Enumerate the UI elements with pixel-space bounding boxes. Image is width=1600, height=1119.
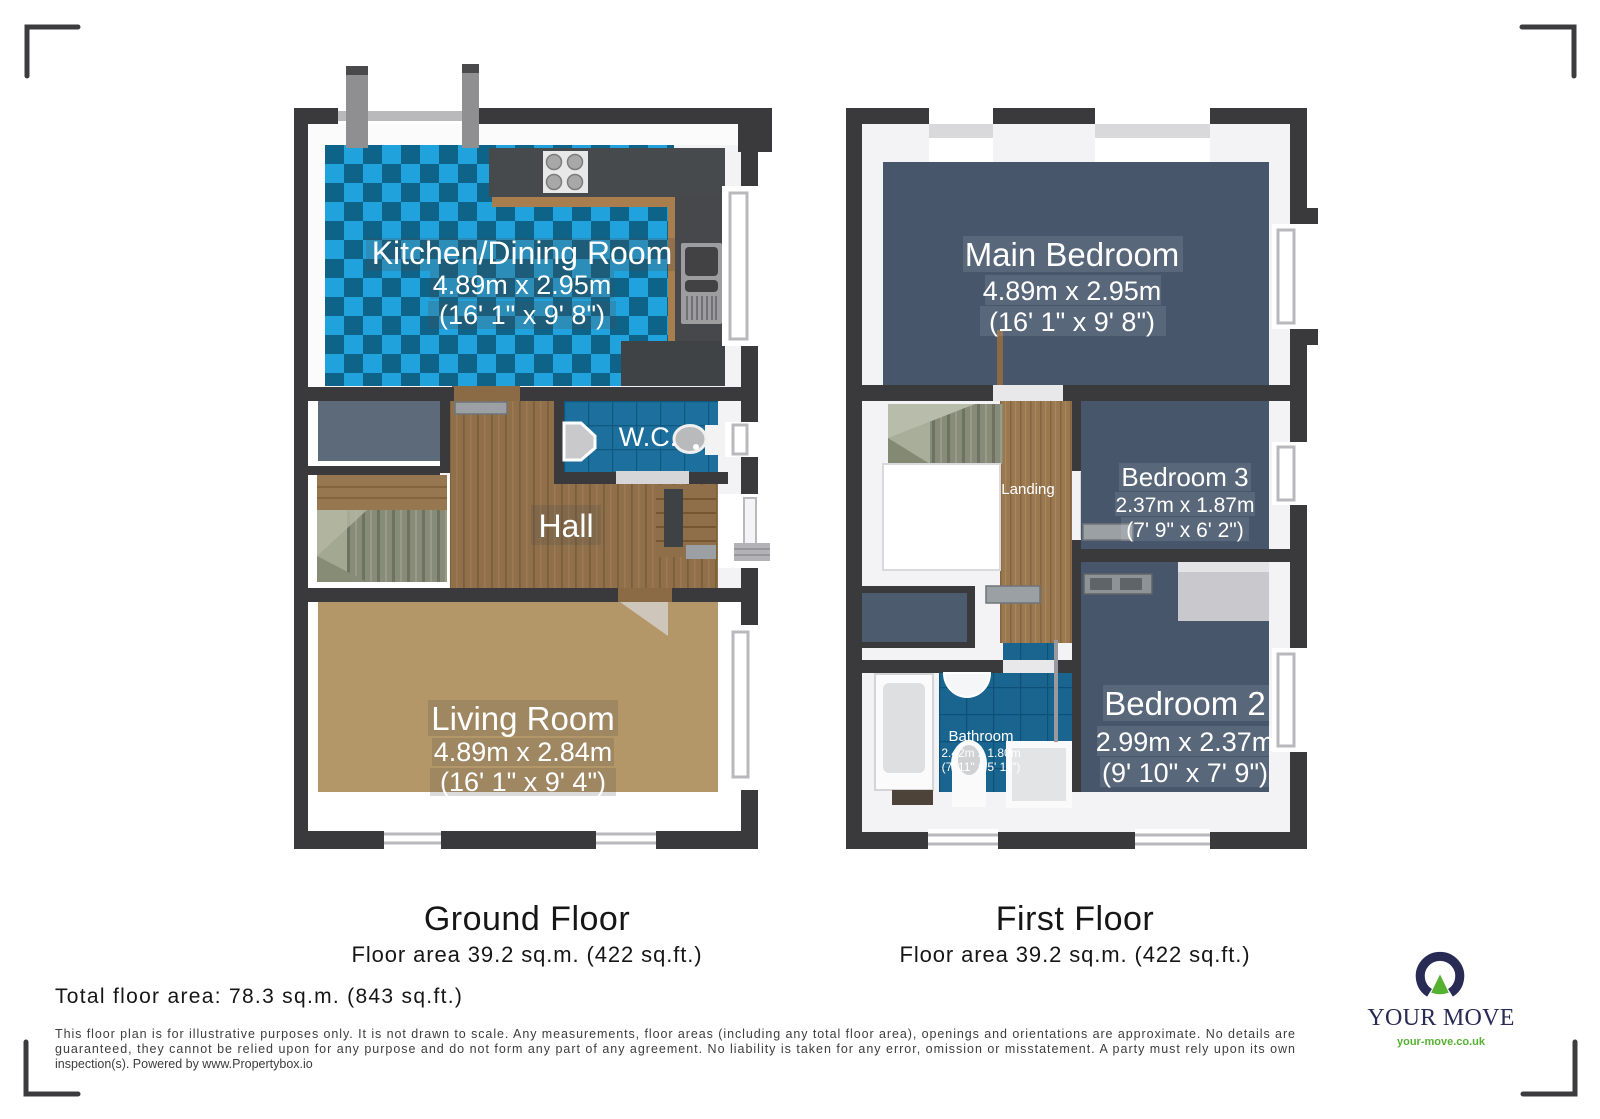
svg-text:Bedroom 2: Bedroom 2 <box>1104 685 1265 722</box>
svg-text:First Floor: First Floor <box>996 900 1155 938</box>
svg-text:(16' 1" x 9' 8"): (16' 1" x 9' 8") <box>439 300 605 330</box>
svg-text:Floor area 39.2 sq.m. (422 sq.: Floor area 39.2 sq.m. (422 sq.ft.) <box>352 942 703 967</box>
svg-text:(16' 1" x 9' 4"): (16' 1" x 9' 4") <box>440 767 606 797</box>
svg-text:guaranteed, they cannot be rel: guaranteed, they cannot be relied upon f… <box>55 1042 1295 1056</box>
svg-text:4.89m x 2.95m: 4.89m x 2.95m <box>433 270 612 300</box>
svg-text:Hall: Hall <box>538 508 593 544</box>
svg-text:4.89m x 2.84m: 4.89m x 2.84m <box>434 737 613 767</box>
svg-text:4.89m x 2.95m: 4.89m x 2.95m <box>983 276 1162 306</box>
svg-text:2.42m x 1.80m: 2.42m x 1.80m <box>941 746 1020 760</box>
svg-text:Ground Floor: Ground Floor <box>424 900 630 938</box>
svg-text:Living Room: Living Room <box>431 700 614 737</box>
svg-text:2.99m x 2.37m: 2.99m x 2.37m <box>1096 727 1275 757</box>
svg-text:Bedroom 3: Bedroom 3 <box>1121 462 1248 492</box>
svg-text:inspection(s). Powered by www.: inspection(s). Powered by www.Propertybo… <box>55 1057 313 1071</box>
svg-text:Floor area 39.2 sq.m. (422 sq.: Floor area 39.2 sq.m. (422 sq.ft.) <box>900 942 1251 967</box>
svg-text:Bathroom: Bathroom <box>948 728 1013 745</box>
svg-text:(7' 11" x 5' 11"): (7' 11" x 5' 11") <box>942 760 1021 774</box>
svg-text:Landing: Landing <box>1001 481 1054 498</box>
svg-text:(9' 10" x 7' 9"): (9' 10" x 7' 9") <box>1102 758 1268 788</box>
svg-text:(7' 9" x 6' 2"): (7' 9" x 6' 2") <box>1126 519 1243 542</box>
svg-text:Kitchen/Dining Room: Kitchen/Dining Room <box>372 235 673 271</box>
svg-text:YOUR MOVE: YOUR MOVE <box>1367 1005 1514 1031</box>
svg-text:your-move.co.uk: your-move.co.uk <box>1397 1036 1486 1048</box>
svg-text:2.37m x 1.87m: 2.37m x 1.87m <box>1116 494 1255 517</box>
svg-text:Total floor area: 78.3 sq.m. (: Total floor area: 78.3 sq.m. (843 sq.ft.… <box>55 985 463 1008</box>
svg-text:W.C.: W.C. <box>619 422 678 452</box>
svg-text:(16' 1" x 9' 8"): (16' 1" x 9' 8") <box>989 307 1155 337</box>
svg-text:This floor plan is for illustr: This floor plan is for illustrative purp… <box>55 1027 1295 1041</box>
svg-text:Main Bedroom: Main Bedroom <box>965 236 1180 273</box>
